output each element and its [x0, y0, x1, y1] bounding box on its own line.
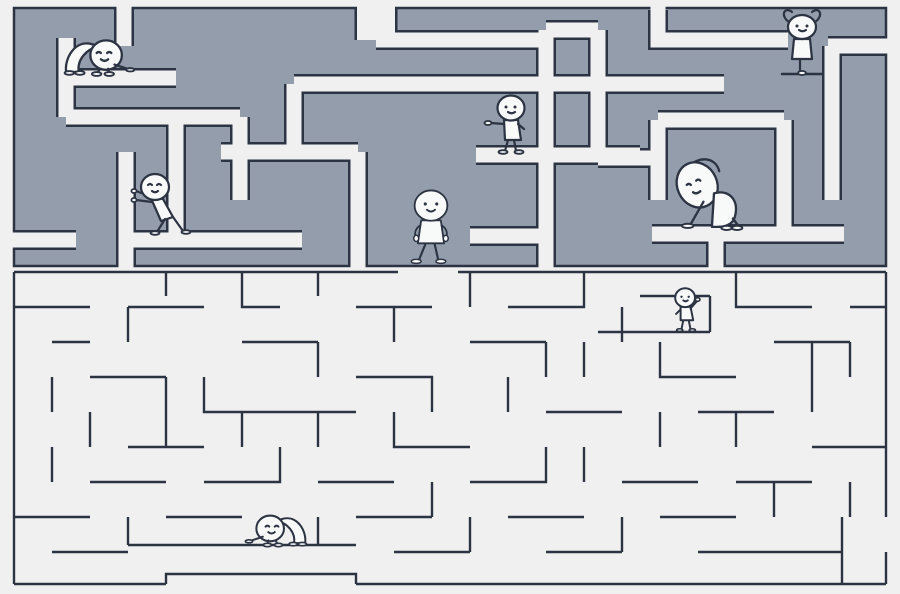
- lower-maze-wall: [660, 342, 736, 377]
- figure-crawling-lower-left: [245, 516, 306, 547]
- figure-waving: [675, 288, 700, 331]
- lower-maze-wall: [470, 447, 546, 482]
- lower-maze-wall: [166, 574, 356, 584]
- lower-maze-wall: [242, 272, 280, 307]
- lower-maze: [14, 272, 886, 584]
- upper-maze: [5, 0, 895, 275]
- lower-maze-wall: [204, 447, 280, 482]
- lower-maze-wall: [736, 272, 812, 307]
- lower-maze-wall: [394, 412, 470, 447]
- lower-maze-wall: [356, 377, 432, 412]
- lower-maze-wall: [508, 272, 584, 307]
- maze-scene: [0, 0, 900, 594]
- maze-illustration: [0, 0, 900, 594]
- lower-maze-wall: [204, 377, 280, 412]
